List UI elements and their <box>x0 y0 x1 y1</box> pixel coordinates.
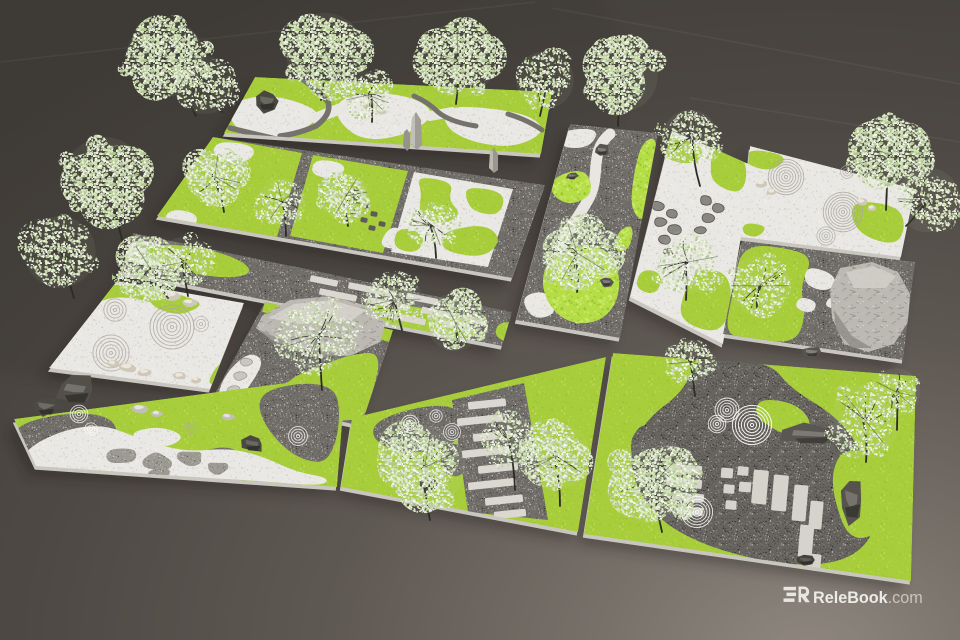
svg-text:ReleBook.com: ReleBook.com <box>813 589 923 607</box>
